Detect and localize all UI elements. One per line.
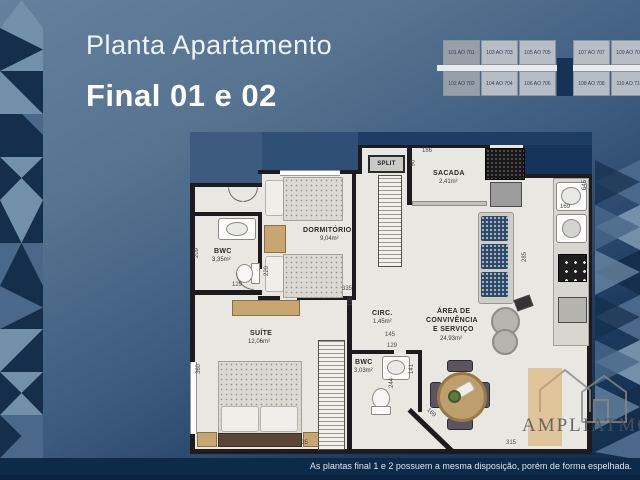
keyplan-unit-label: 103 AO 703 bbox=[486, 50, 512, 56]
wall bbox=[352, 350, 394, 354]
keyplan-unit: 105 AO 705 bbox=[519, 40, 556, 65]
dim-label: 186 bbox=[422, 148, 432, 154]
background-mask bbox=[523, 145, 592, 174]
disclaimer-text: As plantas final 1 e 2 possuem a mesma d… bbox=[0, 461, 632, 471]
keyplan-unit: 109 AO 709 bbox=[611, 40, 640, 65]
sofa-cushion-icon bbox=[481, 216, 508, 241]
room-area-bwc1: 3,35m² bbox=[212, 257, 231, 263]
room-label-dormitorio: DORMITÓRIO bbox=[303, 227, 352, 234]
room-label-circ: CIRC. bbox=[372, 310, 393, 317]
wall bbox=[347, 296, 352, 454]
pillow-icon bbox=[221, 406, 259, 432]
chair-icon bbox=[447, 360, 473, 372]
wardrobe-icon bbox=[232, 300, 300, 316]
keyplan-unit: 103 AO 703 bbox=[481, 40, 518, 65]
bottom-bar-shadow bbox=[0, 475, 640, 480]
sofa-cushion-icon bbox=[481, 244, 508, 269]
background-mask bbox=[262, 132, 358, 170]
room-label-suite: SUÍTE bbox=[250, 330, 272, 337]
dim-label: 129 bbox=[232, 282, 242, 288]
pouf-icon bbox=[492, 329, 518, 355]
keyplan-unit-label: 107 AO 707 bbox=[578, 50, 604, 56]
keyplan-unit-label: 110 AO 710 bbox=[616, 81, 640, 87]
dim-label: 315 bbox=[506, 440, 516, 446]
dim-label: 141 bbox=[409, 364, 415, 374]
room-area-dormitorio: 9,04m² bbox=[320, 236, 339, 242]
wall bbox=[258, 212, 262, 269]
headboard-icon bbox=[218, 433, 302, 447]
split-unit: SPLIT bbox=[368, 155, 405, 173]
keyplan-unit-label: 109 AO 709 bbox=[616, 50, 640, 56]
wall bbox=[190, 449, 592, 454]
room-label-bwc1: BWC bbox=[214, 248, 232, 255]
nightstand-icon bbox=[197, 432, 217, 447]
page-subtitle: Final 01 e 02 bbox=[86, 78, 277, 114]
oven-icon bbox=[558, 297, 587, 323]
dim-label: 220 bbox=[264, 266, 270, 276]
room-area-bwc2: 3,03m² bbox=[354, 368, 373, 374]
dim-label: 169 bbox=[560, 204, 570, 210]
room-area-circ: 1,45m² bbox=[373, 319, 392, 325]
wall bbox=[190, 212, 262, 216]
room-label-convivencia: ÁREA DE bbox=[437, 308, 470, 315]
room-label-convivencia: E SERVIÇO bbox=[433, 326, 474, 333]
dim-label: 169 bbox=[425, 407, 436, 418]
room-area-sacada: 2,41m² bbox=[439, 179, 458, 185]
pillow-icon bbox=[260, 406, 298, 432]
dim-label: 209 bbox=[194, 248, 200, 258]
triangle-pattern-left bbox=[0, 0, 43, 480]
utility-box-icon bbox=[490, 182, 522, 207]
wall bbox=[352, 170, 356, 300]
keyplan-unit-label: 105 AO 705 bbox=[524, 50, 550, 56]
dim-label: 335 bbox=[342, 286, 352, 292]
room-label-convivencia: CONVIVÊNCIA bbox=[426, 317, 478, 324]
speaker-icon bbox=[513, 294, 533, 311]
cooktop-icon bbox=[558, 254, 587, 282]
dim-label: 285 bbox=[522, 252, 528, 262]
sink-icon bbox=[387, 360, 405, 375]
dim-label: 360 bbox=[196, 364, 202, 374]
sink-basin-icon bbox=[561, 187, 581, 205]
keyplan-unit-label: 104 AO 704 bbox=[486, 81, 512, 87]
keyplan-unit: 108 AO 708 bbox=[573, 71, 610, 96]
pillow-icon bbox=[265, 180, 284, 216]
keyplan-unit: 107 AO 707 bbox=[573, 40, 610, 65]
room-area-suite: 12,06m² bbox=[248, 339, 270, 345]
wall bbox=[358, 145, 362, 174]
keyplan-unit-label: 101 AO 701 bbox=[448, 50, 474, 56]
keyplan-unit: 106 AO 706 bbox=[519, 71, 556, 96]
closet-icon bbox=[318, 340, 345, 450]
keyplan-unit: 104 AO 704 bbox=[481, 71, 518, 96]
dim-label: 244 bbox=[389, 378, 395, 388]
dim-label: 129 bbox=[387, 343, 397, 349]
split-label: SPLIT bbox=[377, 161, 396, 167]
background-mask bbox=[358, 132, 592, 145]
toilet-tank-icon bbox=[371, 406, 391, 415]
keyplan-unit-label: 108 AO 708 bbox=[578, 81, 604, 87]
wall bbox=[407, 145, 412, 205]
background-mask bbox=[190, 132, 262, 183]
wall bbox=[190, 290, 262, 295]
watermark-text: AMPLIATMO bbox=[522, 415, 640, 437]
wardrobe-icon bbox=[378, 175, 402, 267]
keyplan-unit-label: 102 AO 702 bbox=[448, 81, 474, 87]
keyplan-unit: 102 AO 702 bbox=[443, 71, 480, 96]
plant-icon bbox=[448, 390, 461, 403]
window bbox=[280, 170, 340, 176]
keyplan-unit-label: 106 AO 706 bbox=[524, 81, 550, 87]
balcony-rail bbox=[412, 201, 487, 206]
entry-door-swing-icon bbox=[228, 187, 243, 202]
room-label-sacada: SACADA bbox=[433, 170, 465, 177]
sofa-cushion-icon bbox=[481, 272, 508, 297]
wall bbox=[418, 350, 422, 412]
room-area-convivencia: 24,93m² bbox=[440, 336, 462, 342]
single-bed-icon bbox=[283, 254, 343, 298]
dim-label: 100 bbox=[348, 296, 354, 306]
room-label-bwc2: BWC bbox=[355, 359, 373, 366]
washer-door-icon bbox=[562, 219, 581, 238]
nightstand-icon bbox=[264, 225, 286, 253]
dim-label: 145 bbox=[385, 332, 395, 338]
entry-door-swing-icon bbox=[243, 187, 258, 202]
dim-label: 335 bbox=[298, 440, 308, 446]
page-title: Planta Apartamento bbox=[86, 30, 332, 61]
dim-label: 90 bbox=[410, 160, 416, 167]
single-bed-icon bbox=[283, 177, 343, 221]
keyplan-unit: 110 AO 710 bbox=[611, 71, 640, 96]
sink-icon bbox=[226, 222, 248, 236]
keyplan-unit: 101 AO 701 bbox=[443, 40, 480, 65]
dim-label: 645 bbox=[582, 180, 588, 190]
keyplan-elevator-gap bbox=[557, 58, 573, 96]
building-keyplan: 101 AO 701 103 AO 703 105 AO 705 107 AO … bbox=[443, 40, 640, 96]
ac-condenser-icon bbox=[485, 148, 525, 180]
